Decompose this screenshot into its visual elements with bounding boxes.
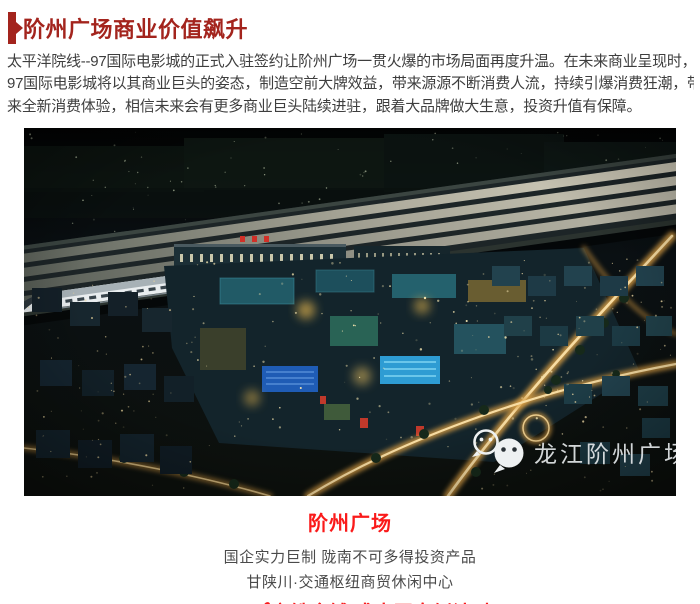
night-aerial-scene: 龙江阶州广场 <box>24 128 676 496</box>
watermark-text: 龙江阶州广场 <box>534 441 676 467</box>
paragraph-line: 来全新消费体验，相信未来会有更多商业巨头陆续进驻，跟着大品牌做大生意，投资升值有… <box>7 96 694 118</box>
caption-line-2: 甘陕川·交通枢纽商贸休闲中心 <box>0 570 700 595</box>
article-page: 阶州广场商业价值飙升 太平洋院线--97国际电影城的正式入驻签约让阶州广场一贯火… <box>0 0 700 604</box>
section-header: 阶州广场商业价值飙升 <box>0 0 700 44</box>
plaza-name-title: 阶州广场 <box>0 507 700 536</box>
article-paragraph: 太平洋院线--97国际电影城的正式入驻签约让阶州广场一贯火爆的市场局面再度升温。… <box>0 44 700 118</box>
plaza-aerial-rendering: 龙江阶州广场 <box>24 128 676 496</box>
sales-cta-text: 20-200㎡高铁金铺 盛大开盘倒计时！ <box>0 598 700 604</box>
page-title: 阶州广场商业价值飙升 <box>23 12 248 44</box>
red-bookmark-icon <box>8 12 16 44</box>
paragraph-line: 97国际电影城将以其商业巨头的姿态，制造空前大牌效益，带来源源不断消费人流，持续… <box>7 73 694 95</box>
footer-captions: 阶州广场 国企实力巨制 陇南不可多得投资产品 甘陕川·交通枢纽商贸休闲中心 20… <box>0 507 700 604</box>
paragraph-line: 太平洋院线--97国际电影城的正式入驻签约让阶州广场一贯火爆的市场局面再度升温。… <box>7 51 694 73</box>
caption-line-1: 国企实力巨制 陇南不可多得投资产品 <box>0 545 700 570</box>
